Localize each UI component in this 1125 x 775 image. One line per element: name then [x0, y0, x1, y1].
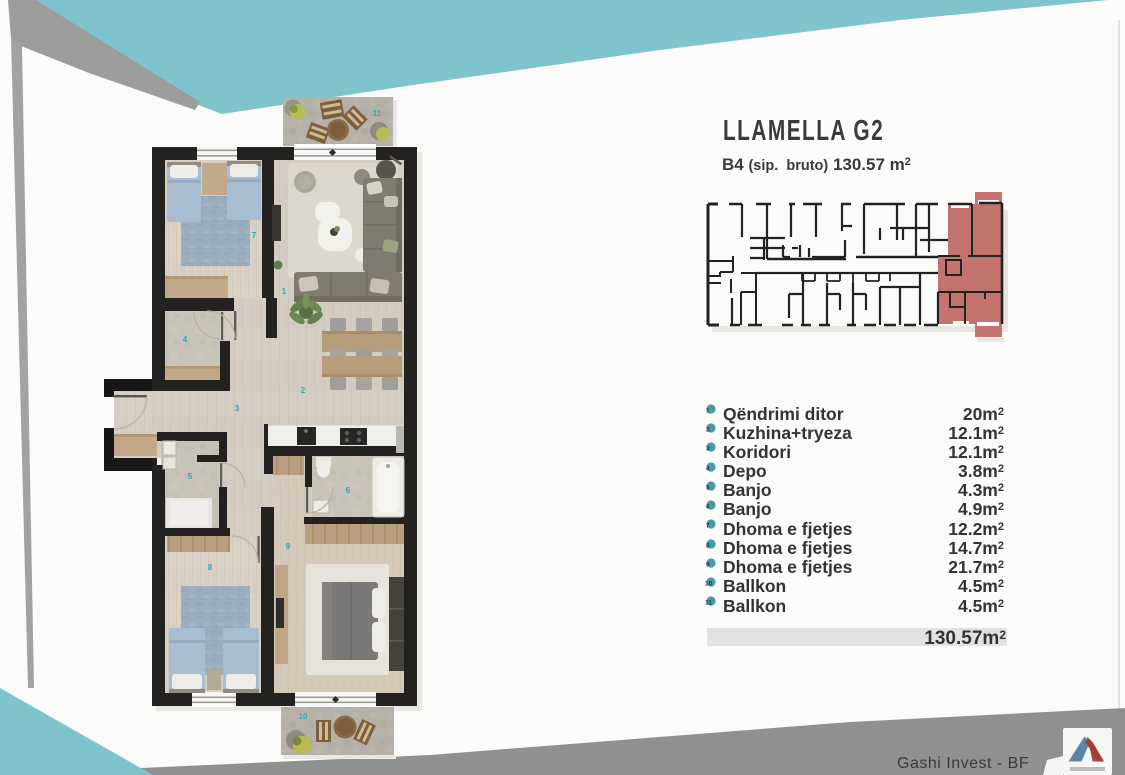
svg-text:3.8m2: 3.8m2: [958, 461, 1004, 481]
svg-text:4.5m2: 4.5m2: [958, 596, 1004, 616]
svg-text:Ballkon: Ballkon: [723, 576, 786, 596]
svg-text:4.5m2: 4.5m2: [958, 576, 1004, 596]
svg-text:8: 8: [208, 563, 213, 572]
svg-text:1: 1: [282, 287, 287, 296]
svg-text:1: 1: [706, 408, 710, 415]
svg-text:10: 10: [705, 581, 713, 588]
svg-text:6: 6: [346, 486, 351, 495]
svg-text:6: 6: [706, 504, 710, 511]
svg-text:7: 7: [252, 231, 257, 240]
svg-text:Banjo: Banjo: [723, 480, 772, 500]
svg-text:12.2m2: 12.2m2: [948, 519, 1004, 539]
svg-text:5: 5: [706, 485, 710, 492]
svg-text:LLAMELLA G2: LLAMELLA G2: [723, 115, 884, 147]
svg-text:12.1m2: 12.1m2: [948, 442, 1004, 462]
svg-text:Dhoma e fjetjes: Dhoma e fjetjes: [723, 557, 853, 577]
svg-text:12.1m2: 12.1m2: [948, 423, 1004, 443]
svg-text:Gashi Invest - BF: Gashi Invest - BF: [897, 755, 1029, 772]
svg-text:130.57m2: 130.57m2: [924, 628, 1006, 649]
svg-text:3: 3: [706, 446, 710, 453]
svg-text:5: 5: [188, 472, 193, 481]
svg-text:2: 2: [301, 386, 306, 395]
svg-text:Banjo: Banjo: [723, 499, 772, 519]
svg-text:Dhoma e fjetjes: Dhoma e fjetjes: [723, 519, 853, 539]
svg-text:4.3m2: 4.3m2: [958, 480, 1004, 500]
svg-text:B4 (sip. bruto) 130.57 m2: B4 (sip. bruto) 130.57 m2: [722, 155, 911, 174]
svg-text:14.7m2: 14.7m2: [948, 538, 1004, 558]
svg-text:Dhoma e fjetjes: Dhoma e fjetjes: [723, 538, 853, 558]
svg-text:Ballkon: Ballkon: [723, 596, 786, 616]
svg-text:4: 4: [706, 466, 710, 473]
svg-text:Kuzhina+tryeza: Kuzhina+tryeza: [723, 423, 852, 443]
svg-text:8: 8: [706, 543, 710, 550]
svg-text:Qëndrimi ditor: Qëndrimi ditor: [723, 404, 844, 424]
svg-text:3: 3: [235, 404, 240, 413]
svg-text:21.7m2: 21.7m2: [948, 557, 1004, 577]
svg-text:2: 2: [706, 427, 710, 434]
svg-text:10: 10: [299, 712, 308, 721]
svg-text:7: 7: [706, 523, 710, 530]
svg-text:20m2: 20m2: [963, 404, 1004, 424]
svg-text:11: 11: [373, 109, 382, 118]
svg-text:11: 11: [705, 600, 712, 607]
svg-text:Koridori: Koridori: [723, 442, 791, 462]
svg-text:9: 9: [286, 542, 291, 551]
svg-text:4.9m2: 4.9m2: [958, 499, 1004, 519]
svg-text:9: 9: [706, 562, 710, 569]
svg-text:Depo: Depo: [723, 461, 767, 481]
svg-text:4: 4: [183, 335, 188, 344]
